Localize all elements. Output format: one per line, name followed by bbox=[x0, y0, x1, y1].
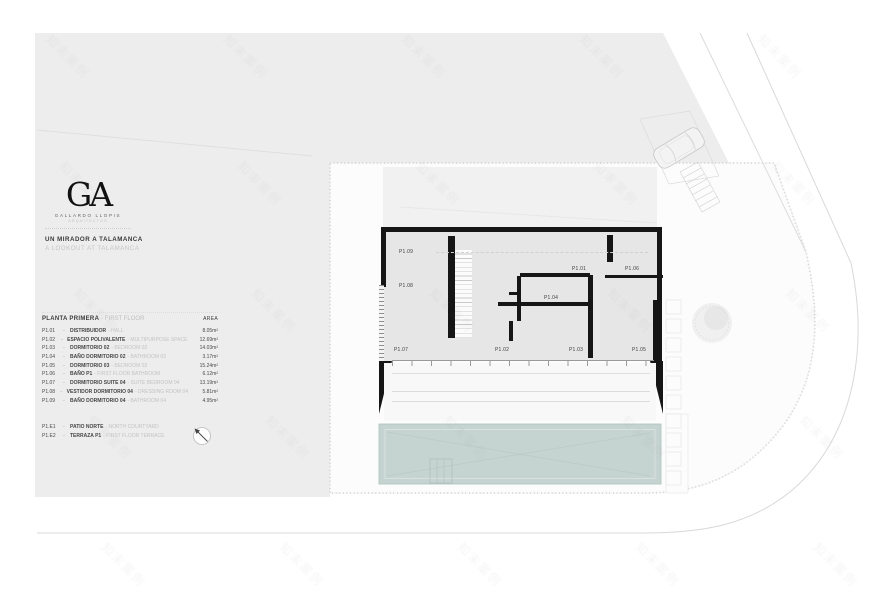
wall-west bbox=[381, 227, 386, 287]
schedule-rows: P1.01- DISTRIBUIDOR- HALL 8.05m² P1.02- … bbox=[42, 327, 218, 405]
project-title-es: UN MIRADOR A TALAMANCA bbox=[45, 236, 143, 243]
schedule-row: P1.01- DISTRIBUIDOR- HALL 8.05m² bbox=[42, 327, 218, 336]
wall-east-thick bbox=[653, 300, 662, 361]
overhang-dashed-line bbox=[436, 252, 648, 253]
south-glass-facade bbox=[392, 360, 654, 366]
project-title: UN MIRADOR A TALAMANCA A LOOKOUT AT TALA… bbox=[45, 236, 143, 252]
terrace-joint-line bbox=[392, 391, 650, 392]
wall-kitchen-return bbox=[509, 292, 518, 295]
room-label: P1.06 bbox=[625, 266, 639, 272]
tree-icon bbox=[692, 303, 732, 343]
studio-name: GALLARDO LLOPIS bbox=[45, 213, 131, 218]
pool bbox=[379, 424, 661, 484]
schedule-row: P1.02- ESPACIO POLIVALENTE- MULTIPURPOSE… bbox=[42, 336, 218, 345]
project-title-en: A LOOKOUT AT TALAMANCA bbox=[45, 245, 143, 252]
schedule-title-en: - FIRST FLOOR bbox=[101, 316, 144, 322]
wall-north bbox=[381, 227, 662, 232]
room-label: P1.01 bbox=[572, 266, 586, 272]
staircase bbox=[453, 250, 472, 338]
room-label: P1.07 bbox=[394, 347, 408, 353]
wall-hall-south bbox=[605, 275, 663, 278]
wall-bath06 bbox=[607, 235, 613, 262]
schedule-row: P1.06- BAÑO P1- FIRST FLOOR BATHROOM 6.1… bbox=[42, 370, 218, 379]
terrace-joint-line bbox=[392, 373, 650, 374]
studio-logo: GA GALLARDO LLOPIS ARQUITECTOS bbox=[45, 178, 131, 229]
west-window bbox=[379, 285, 384, 361]
schedule-row: P1.05- DORMITORIO 03- BEDROOM 03 15.24m² bbox=[42, 362, 218, 371]
floor-plan-sheet: P1.09P1.08P1.01P1.06P1.04P1.07P1.02P1.03… bbox=[0, 0, 880, 592]
schedule-row: P1.E1- PATIO NORTE- NORTH COURTYARD bbox=[42, 423, 218, 432]
room-schedule: PLANTA PRIMERA - FIRST FLOOR AREA P1.01-… bbox=[42, 312, 218, 441]
wall-kitchen bbox=[509, 321, 513, 341]
schedule-exterior-rows: P1.E1- PATIO NORTE- NORTH COURTYARD P1.E… bbox=[42, 423, 218, 440]
room-label: P1.03 bbox=[569, 347, 583, 353]
room-label: P1.04 bbox=[544, 295, 558, 301]
wall-bath04-east bbox=[588, 275, 593, 358]
terrace-joint-line bbox=[392, 401, 650, 402]
wall-bath04-south bbox=[498, 302, 590, 306]
wall-bath04-west bbox=[517, 276, 521, 321]
schedule-row: P1.03- DORMITORIO 02- BEDROOM 02 14.03m² bbox=[42, 344, 218, 353]
schedule-row: P1.09- BAÑO DORMITORIO 04- BATHROOM 04 4… bbox=[42, 397, 218, 406]
room-label: P1.02 bbox=[495, 347, 509, 353]
schedule-header: PLANTA PRIMERA - FIRST FLOOR AREA bbox=[42, 312, 218, 322]
schedule-row: P1.E2- TERRAZA P1- FIRST FLOOR TERRACE bbox=[42, 432, 218, 441]
schedule-row: P1.07- DORMITORIO SUITE 04- SUITE BEDROO… bbox=[42, 379, 218, 388]
schedule-row: P1.04- BAÑO DORMITORIO 02- BATHROOM 02 3… bbox=[42, 353, 218, 362]
room-label: P1.08 bbox=[399, 283, 413, 289]
studio-subtitle: ARQUITECTOS bbox=[45, 219, 131, 223]
schedule-row: P1.08- VESTIDOR DORMITORIO 04- DRESSING … bbox=[42, 388, 218, 397]
divider bbox=[45, 228, 131, 229]
area-column-header: AREA bbox=[203, 316, 218, 322]
north-courtyard bbox=[383, 167, 657, 227]
terrace bbox=[384, 363, 656, 421]
wall-bath04-top bbox=[520, 273, 590, 277]
logo-monogram: GA bbox=[45, 178, 131, 211]
schedule-title-es: PLANTA PRIMERA bbox=[42, 316, 99, 322]
room-label: P1.09 bbox=[399, 249, 413, 255]
room-label: P1.05 bbox=[632, 347, 646, 353]
